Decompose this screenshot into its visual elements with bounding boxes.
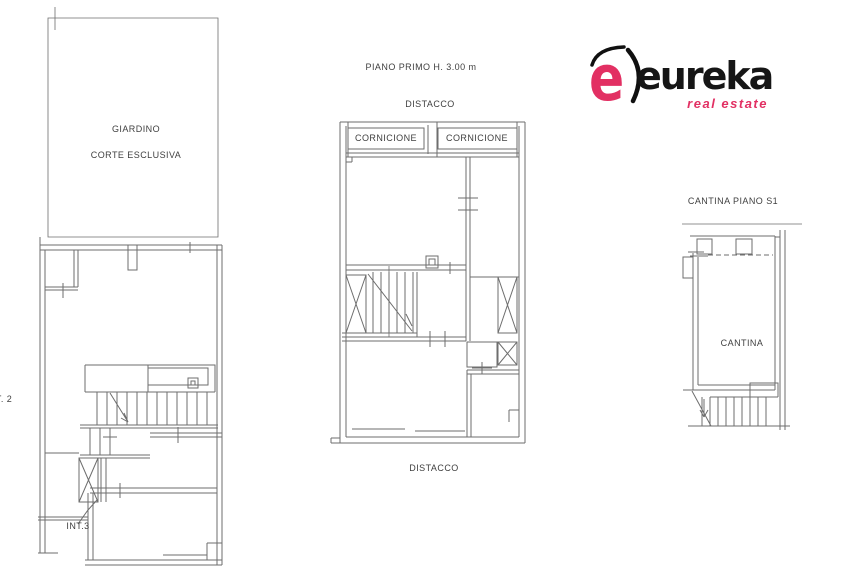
cellar-room-label: CANTINA (721, 338, 764, 348)
first-floor-walls (331, 122, 525, 443)
logo-brand-text: eureka (636, 57, 772, 95)
garden-label-line2: CORTE ESCLUSIVA (91, 150, 181, 160)
cornice-label-left: CORNICIONE (355, 133, 417, 143)
detachment-label-bottom: DISTACCO (409, 463, 458, 473)
ground-floor-walls (38, 237, 222, 565)
logo-tagline-text: real estate (687, 97, 768, 110)
floorplan-page: GIARDINO CORTE ESCLUSIVA INT. 2 INT.3 PI… (0, 0, 856, 588)
staircase-ground-floor (80, 365, 218, 458)
first-floor-title: PIANO PRIMO H. 3.00 m (366, 62, 477, 72)
logo-e-glyph: e (589, 44, 624, 115)
garden-label-line1: GIARDINO (112, 124, 160, 134)
cornice-label-right: CORNICIONE (446, 133, 508, 143)
garden-outline (48, 7, 218, 237)
unit-label-int2: INT. 2 (0, 394, 12, 404)
detachment-label-top: DISTACCO (405, 99, 454, 109)
unit-label-int3: INT.3 (66, 521, 89, 531)
eureka-logo: e eureka real estate (586, 44, 772, 116)
staircase-first-floor (342, 266, 417, 340)
shafts-first-floor (467, 277, 517, 374)
basement-title: CANTINA PIANO S1 (688, 196, 778, 206)
